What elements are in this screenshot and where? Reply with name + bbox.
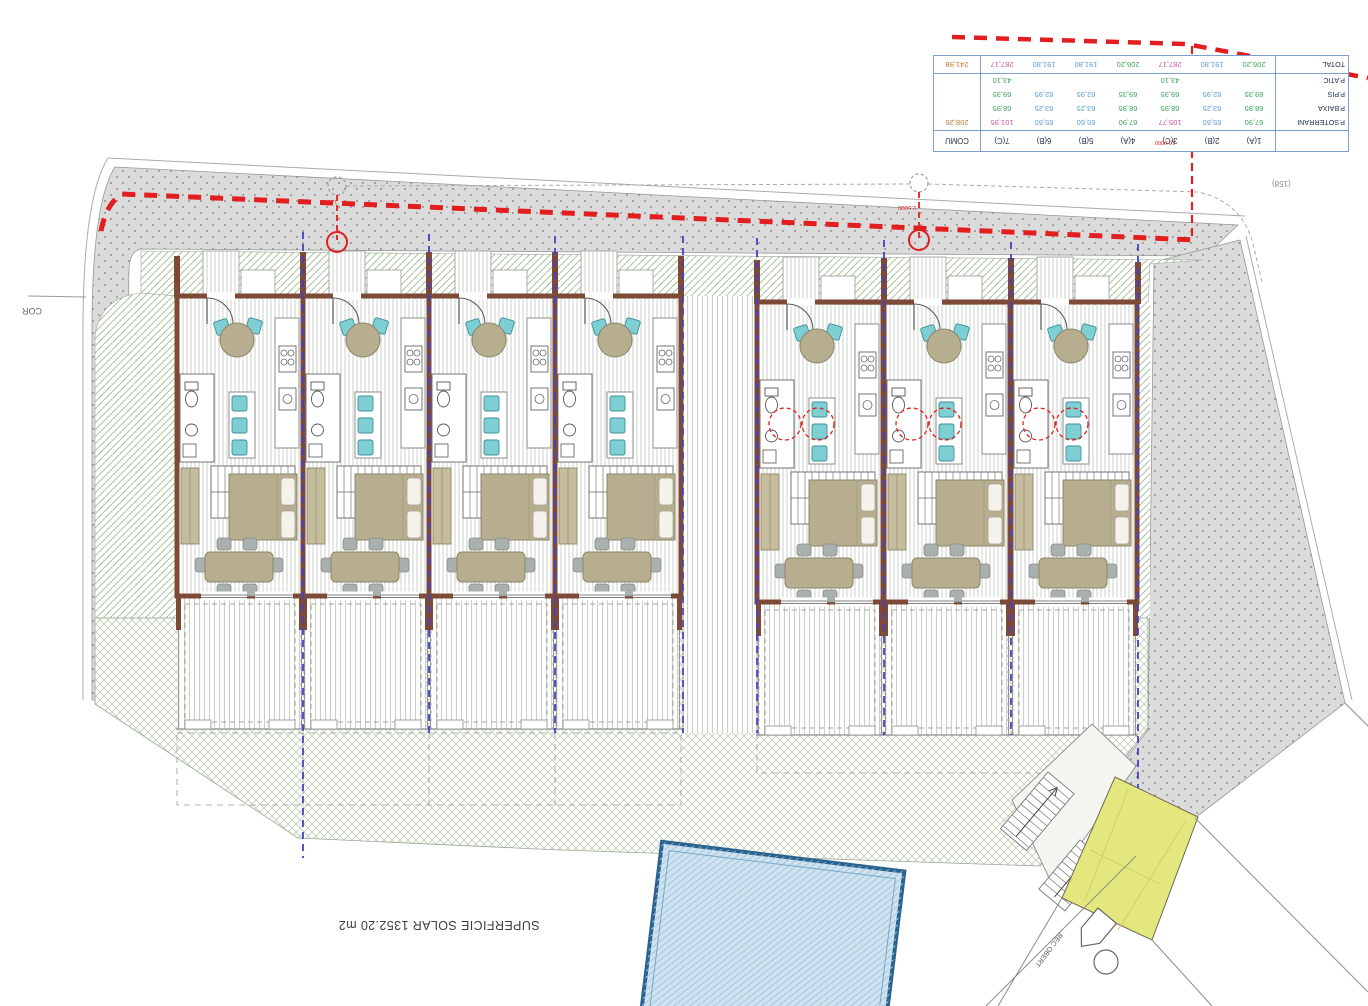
row-label: P.ATIC	[1276, 74, 1349, 89]
area-value: 65,60	[1023, 116, 1065, 131]
area-value: 206,20	[1107, 56, 1149, 74]
area-value: 62,95	[1023, 88, 1065, 102]
col-header: 4(A)	[1107, 131, 1149, 152]
area-value: 63,25	[1023, 102, 1065, 116]
area-value: 62,95	[1191, 88, 1233, 102]
area-value: 67,90	[1233, 116, 1276, 131]
house-unit-2	[303, 251, 429, 601]
house-unit-7	[1011, 257, 1137, 607]
area-value: 191,80	[1065, 56, 1107, 74]
area-value: 287,17	[981, 56, 1024, 74]
area-value: 43,10	[981, 74, 1024, 89]
area-value: 287,17	[1149, 56, 1191, 74]
row-label: P.PIS	[1276, 88, 1349, 102]
col-header: 7(C)	[981, 131, 1024, 152]
area-value: 65,60	[1065, 116, 1107, 131]
parcel-ref-label: (158)	[1272, 179, 1291, 188]
area-value	[1107, 74, 1149, 89]
dimension-label-table: 10.0000	[1155, 139, 1175, 145]
house-unit-3	[429, 251, 555, 601]
house-unit-6	[884, 257, 1010, 607]
table-row: P.SOTERRANI67,9065,60105,7767,9065,6065,…	[934, 116, 1349, 131]
area-value: 63,25	[1065, 102, 1107, 116]
area-value: 69,35	[981, 88, 1024, 102]
col-header: 5(B)	[1065, 131, 1107, 152]
area-value: 105,77	[1149, 116, 1191, 131]
table-row: P.ATIC43,1043,10	[934, 74, 1349, 89]
area-value: 68,95	[1107, 102, 1149, 116]
area-value: 69,35	[1107, 88, 1149, 102]
area-value: 191,80	[1023, 56, 1065, 74]
table-row: P.PIS69,3562,9569,3569,3562,9562,9569,35	[934, 88, 1349, 102]
house-unit-1	[177, 251, 303, 601]
area-value: 241,98	[934, 56, 981, 74]
terraces	[176, 596, 1138, 735]
area-value	[1233, 74, 1276, 89]
area-value: 208,26	[934, 116, 981, 131]
area-value: 69,35	[1149, 88, 1191, 102]
house-unit-5	[757, 257, 883, 607]
area-value	[1065, 74, 1107, 89]
central-walkway	[683, 296, 757, 733]
col-header: 2(B)	[1191, 131, 1233, 152]
site-plan-canvas: 1(A)2(B)3(C)4(A)5(B)6(B)7(C)COMUP.SOTERR…	[0, 0, 1368, 1006]
table-row: P.BAIXA68,9563,2568,9568,9563,2563,2568,…	[934, 102, 1349, 116]
col-header: COMU	[934, 131, 981, 152]
row-label: P.SOTERRANI	[1276, 116, 1349, 131]
area-value: 65,60	[1191, 116, 1233, 131]
row-label: TOTAL	[1276, 56, 1349, 74]
area-value	[934, 88, 981, 102]
area-value: 191,80	[1191, 56, 1233, 74]
area-value: 62,95	[1065, 88, 1107, 102]
dimension-label-left: 1.0660	[322, 198, 337, 204]
area-value: 63,25	[1191, 102, 1233, 116]
col-header: 6(B)	[1023, 131, 1065, 152]
dimension-label-right: 2.5000	[898, 204, 916, 210]
table-header-row: 1(A)2(B)3(C)4(A)5(B)6(B)7(C)COMU	[934, 131, 1349, 152]
table-row: TOTAL206,20191,80287,17206,20191,80191,8…	[934, 56, 1349, 74]
area-value: 68,95	[1149, 102, 1191, 116]
house-block-right	[757, 257, 1137, 607]
area-value	[1023, 74, 1065, 89]
swimming-pool	[640, 842, 905, 1006]
area-value	[934, 74, 981, 89]
area-value: 68,95	[981, 102, 1024, 116]
area-summary-table: 1(A)2(B)3(C)4(A)5(B)6(B)7(C)COMUP.SOTERR…	[933, 55, 1349, 152]
area-value: 67,90	[1107, 116, 1149, 131]
street-name-label: COR	[22, 306, 42, 316]
area-value	[934, 102, 981, 116]
house-unit-4	[555, 251, 681, 601]
area-value: 206,20	[1233, 56, 1276, 74]
row-label: P.BAIXA	[1276, 102, 1349, 116]
area-value	[1191, 74, 1233, 89]
area-value: 43,10	[1149, 74, 1191, 89]
superficie-solar-label: SUPERFICIE SOLAR 1352.20 m2	[330, 918, 548, 932]
area-value: 68,95	[1233, 102, 1276, 116]
col-header: 1(A)	[1233, 131, 1276, 152]
area-value: 69,35	[1233, 88, 1276, 102]
area-value: 101,95	[981, 116, 1024, 131]
